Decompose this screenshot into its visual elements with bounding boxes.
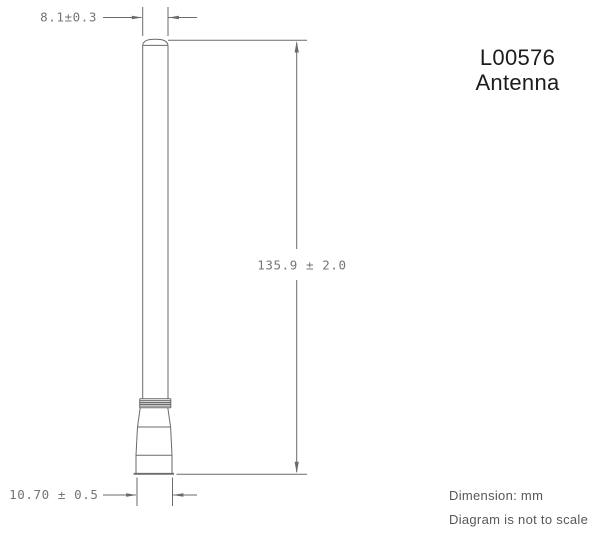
title-block: L00576 Antenna [425,45,608,95]
height-dim-arrow-up [295,41,299,53]
antenna-outline [134,39,174,474]
part-name: Antenna [425,70,608,95]
top-dim-arrow-left [132,16,143,20]
antenna-base-left-edge [136,408,140,474]
base-width-label: 10.70 ± 0.5 [9,487,98,502]
base-width-dimension: 10.70 ± 0.5 [9,478,197,507]
antenna-cap [143,39,168,45]
units-note: Dimension: mm [449,484,588,508]
height-label: 135.9 ± 2.0 [257,258,346,273]
base-dim-arrow-left [126,493,137,497]
part-number: L00576 [425,45,608,70]
antenna-ribbed-collar [140,399,171,408]
height-dimension: 135.9 ± 2.0 [168,40,347,474]
height-dim-arrow-down [295,462,299,474]
top-dim-arrow-right [168,16,179,20]
scale-note: Diagram is not to scale [449,508,588,532]
top-width-dimension: 8.1±0.3 [40,7,197,36]
base-dim-arrow-right [173,493,184,497]
notes-block: Dimension: mm Diagram is not to scale [449,484,588,532]
antenna-drawing-page: 8.1±0.3 135.9 ± 2.0 10.70 ± 0.5 L00576 A… [0,0,608,550]
top-width-label: 8.1±0.3 [40,10,97,25]
antenna-base-right-edge [168,408,172,474]
